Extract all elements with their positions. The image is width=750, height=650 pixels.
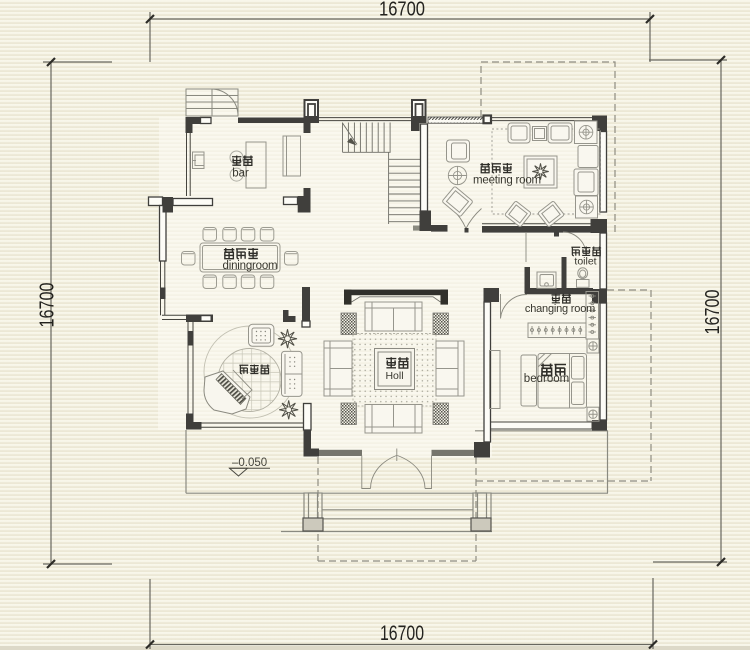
- svg-text:16700: 16700: [37, 283, 59, 328]
- svg-text:16700: 16700: [379, 0, 425, 21]
- svg-text:meeting room: meeting room: [473, 175, 541, 187]
- svg-text:bar: bar: [232, 168, 249, 180]
- svg-text:changing room: changing room: [525, 303, 595, 315]
- svg-text:Holl: Holl: [385, 370, 403, 382]
- svg-text:diningroom: diningroom: [223, 260, 278, 272]
- svg-text:toilet: toilet: [574, 256, 596, 268]
- svg-text:16700: 16700: [380, 621, 424, 645]
- svg-text:–0.050: –0.050: [232, 457, 267, 469]
- svg-text:16700: 16700: [702, 290, 724, 335]
